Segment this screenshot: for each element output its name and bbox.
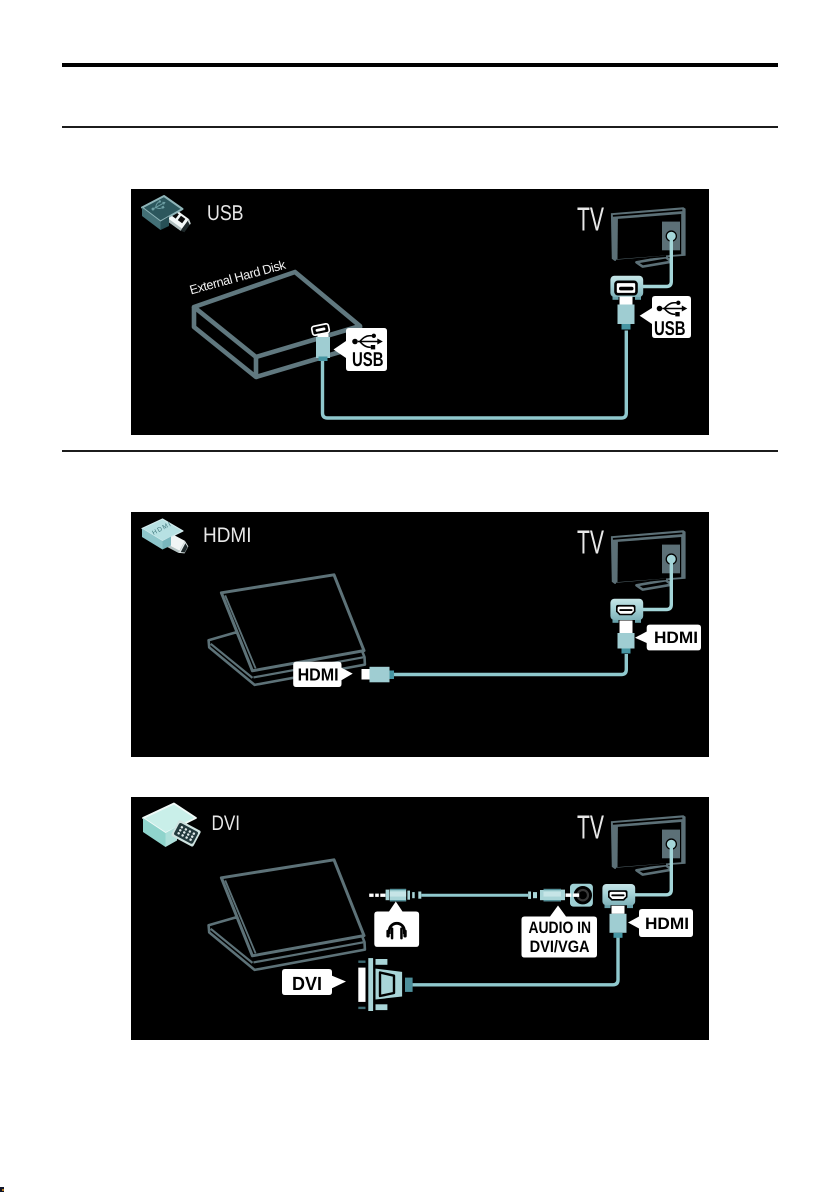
svg-text:HDMI: HDMI — [203, 524, 252, 547]
svg-text:HDMI: HDMI — [654, 629, 698, 647]
svg-text:TV: TV — [577, 810, 604, 847]
svg-text:DVI: DVI — [292, 974, 322, 995]
svg-text:DVI/VGA: DVI/VGA — [530, 938, 590, 956]
svg-text:USB: USB — [654, 318, 686, 340]
svg-text:TV: TV — [577, 525, 604, 562]
svg-text:TV: TV — [577, 202, 604, 239]
svg-text:HDMI: HDMI — [645, 915, 689, 933]
svg-text:AUDIO IN: AUDIO IN — [529, 919, 592, 937]
svg-text:DVI: DVI — [212, 812, 241, 835]
svg-text:USB: USB — [207, 201, 244, 225]
svg-text:USB: USB — [352, 349, 384, 371]
svg-text:HDMI: HDMI — [298, 664, 339, 684]
